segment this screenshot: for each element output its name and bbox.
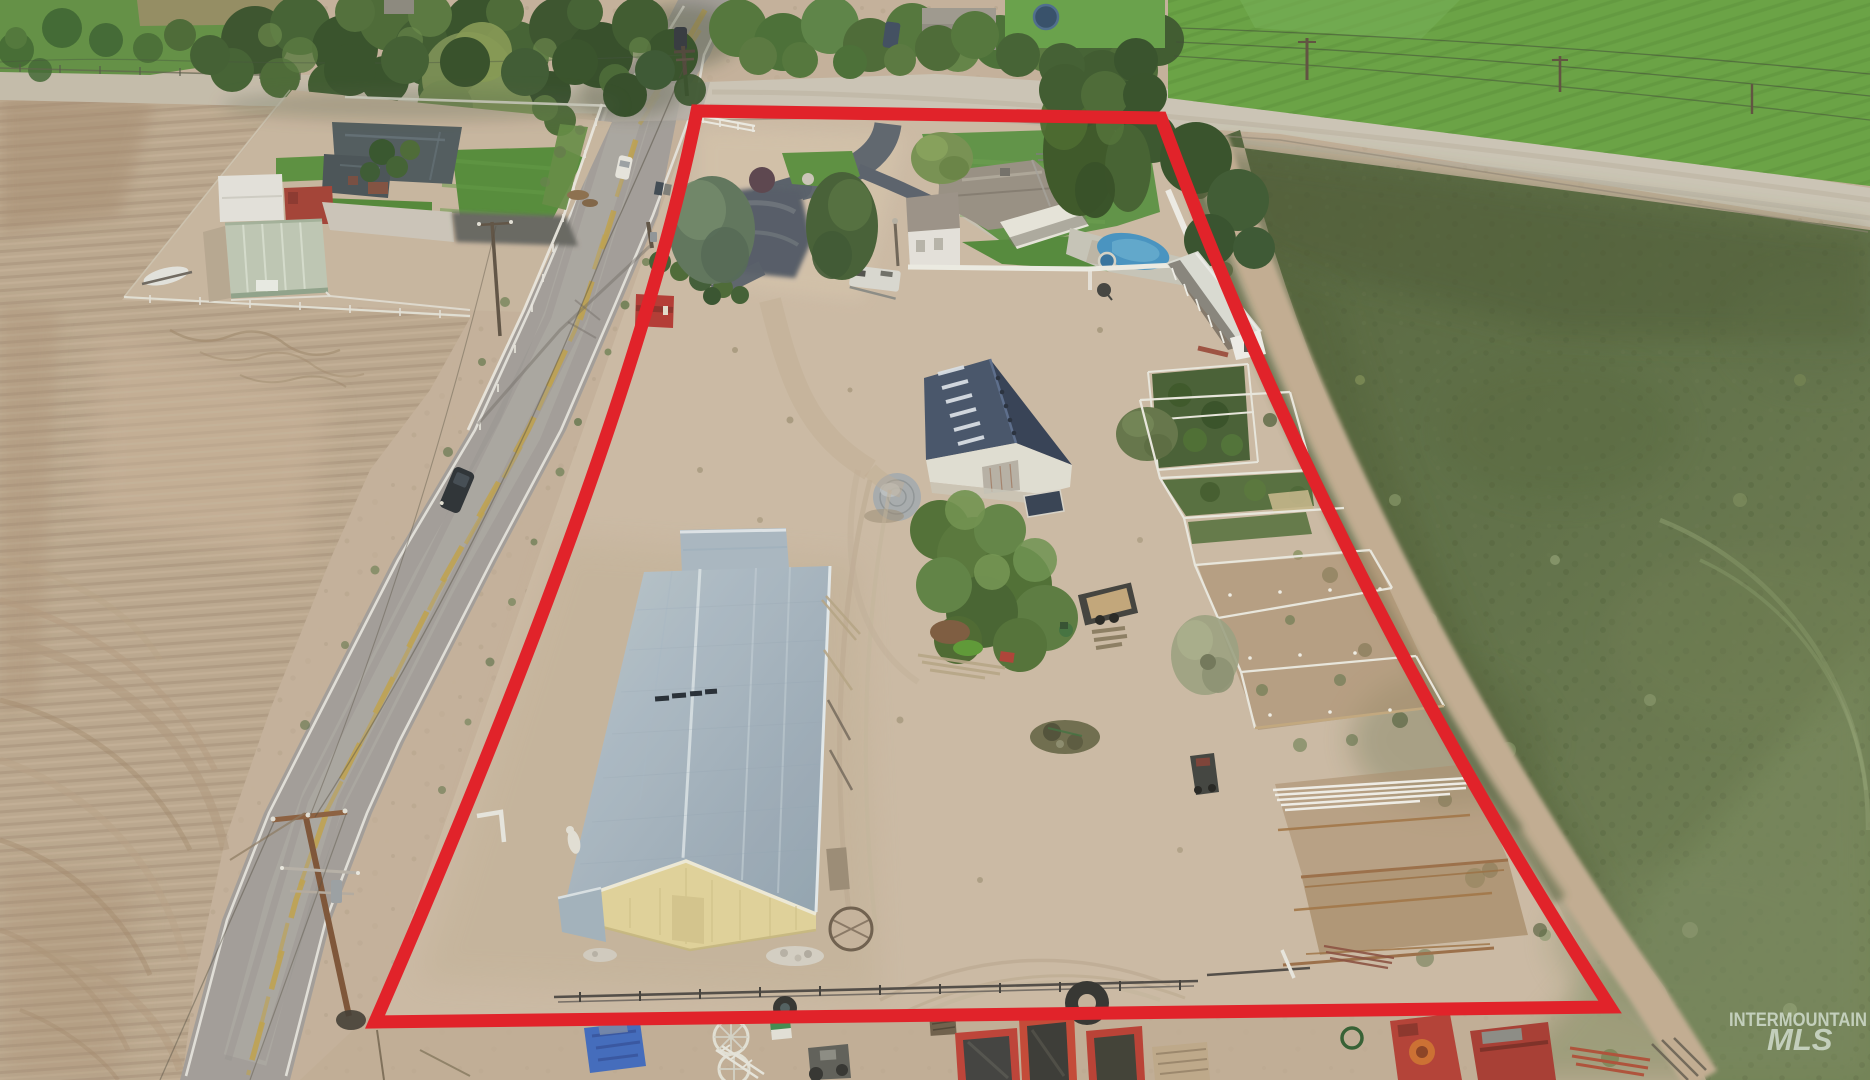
svg-text:MLS: MLS (1767, 1022, 1833, 1057)
